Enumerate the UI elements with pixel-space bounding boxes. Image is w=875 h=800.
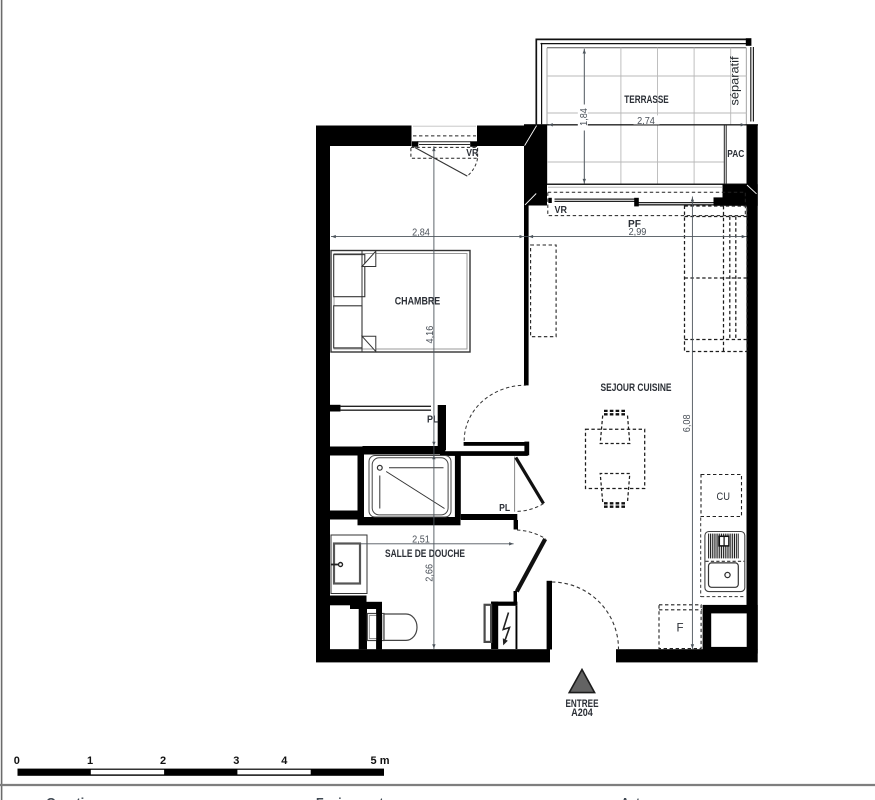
svg-text:Quartier: Quartier xyxy=(46,795,97,800)
svg-text:3: 3 xyxy=(233,755,239,767)
svg-text:CHAMBRE: CHAMBRE xyxy=(395,296,441,308)
svg-text:SALLE DE DOUCHE: SALLE DE DOUCHE xyxy=(385,548,465,560)
svg-text:0: 0 xyxy=(14,755,20,767)
svg-text:A204: A204 xyxy=(571,707,593,719)
svg-text:2: 2 xyxy=(160,755,166,767)
svg-text:5 m: 5 m xyxy=(371,755,390,767)
svg-text:PL: PL xyxy=(499,503,510,514)
svg-text:F: F xyxy=(676,623,683,635)
svg-text:2,84: 2,84 xyxy=(412,227,430,238)
svg-text:VR: VR xyxy=(466,148,479,159)
svg-text:Autres: Autres xyxy=(621,795,657,800)
svg-text:2,51: 2,51 xyxy=(412,534,430,545)
svg-text:6,08: 6,08 xyxy=(682,414,693,432)
svg-text:PL: PL xyxy=(427,414,439,425)
svg-text:2,66: 2,66 xyxy=(424,564,435,582)
svg-text:1,84: 1,84 xyxy=(579,108,590,126)
svg-text:1: 1 xyxy=(87,755,93,767)
svg-text:4: 4 xyxy=(281,755,288,767)
svg-text:PAC: PAC xyxy=(727,148,744,160)
svg-text:séparatif: séparatif xyxy=(728,56,742,106)
svg-text:SEJOUR CUISINE: SEJOUR CUISINE xyxy=(601,382,672,394)
svg-text:2,74: 2,74 xyxy=(637,116,655,127)
svg-text:TERRASSE: TERRASSE xyxy=(624,94,669,106)
svg-text:Equipements: Equipements xyxy=(316,795,390,800)
svg-text:CU: CU xyxy=(717,491,731,503)
svg-text:4,16: 4,16 xyxy=(425,325,436,343)
svg-text:VR: VR xyxy=(555,205,568,216)
